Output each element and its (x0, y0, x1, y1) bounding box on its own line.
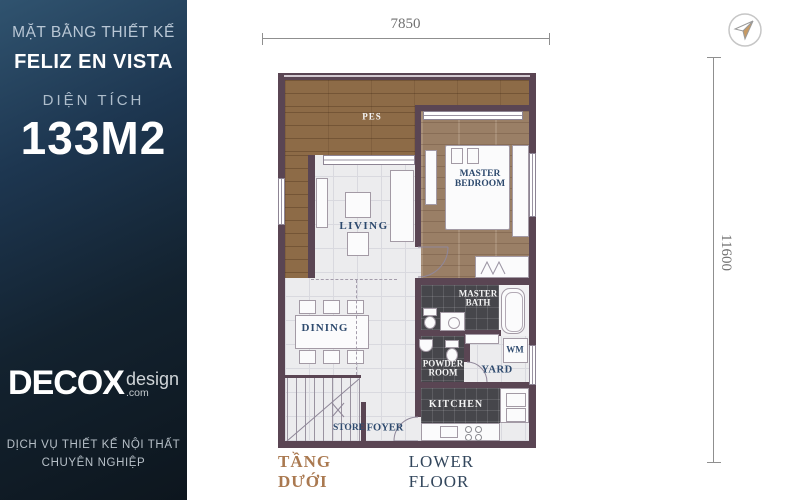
room-label-yard: YARD (481, 364, 512, 375)
dimension-tick (549, 33, 550, 45)
room-label-dining: DINING (302, 323, 349, 335)
dimension-height-line (713, 57, 714, 462)
yard-window (529, 345, 536, 385)
caption-vietnamese: TẦNG DƯỚI (278, 452, 383, 492)
floor-plan: PES MASTER BEDROOM LIVING DINING MASTER … (278, 73, 536, 448)
room-label-master-bedroom: MASTER BEDROOM (455, 170, 505, 190)
logo-name: DECOX (8, 368, 124, 399)
sidebar: MẶT BẰNG THIẾT KẾ FELIZ EN VISTA DIỆN TÍ… (0, 0, 187, 500)
plan-linework (285, 80, 529, 441)
dimension-tick (707, 57, 721, 58)
project-name: FELIZ EN VISTA (0, 51, 187, 74)
room-label-wm: WM (506, 345, 524, 354)
label-line: BEDROOM (455, 180, 505, 190)
sidebar-subtitle: MẶT BẰNG THIẾT KẾ (0, 24, 187, 42)
caption-english: LOWER FLOOR (409, 452, 536, 492)
area-label: DIỆN TÍCH (0, 92, 187, 109)
balcony-railing (284, 75, 530, 77)
dimension-tick (262, 33, 263, 45)
room-label-foyer: FOYER (367, 422, 404, 433)
room-label-kitchen: KITCHEN (429, 400, 483, 411)
room-label-living: LIVING (339, 221, 388, 233)
bedroom-right-window (529, 153, 536, 217)
logo-suffix: design (126, 371, 179, 388)
label-line: ROOM (423, 369, 464, 378)
plan-interior: PES MASTER BEDROOM LIVING DINING MASTER … (285, 80, 529, 441)
left-wall-window (278, 178, 285, 225)
room-label-powder-room: POWDER ROOM (423, 360, 464, 379)
area-value: 133M2 (0, 111, 187, 165)
services-text: DỊCH VỤ THIẾT KẾ NỘI THẤT CHUYÊN NGHIỆP (0, 437, 187, 473)
services-line1: DỊCH VỤ THIẾT KẾ NỘI THẤT (0, 437, 187, 455)
dimension-width-line (262, 38, 549, 39)
dimension-width-label: 7850 (262, 16, 549, 33)
logo-domain: .com (126, 388, 149, 399)
closet-rail-mark (481, 262, 505, 274)
room-label-master-bath: MASTER BATH (459, 290, 498, 309)
logo-side: design .com (126, 371, 179, 399)
room-label-pes: PES (362, 112, 382, 121)
label-line: BATH (459, 299, 498, 308)
decox-logo: DECOX design .com (0, 368, 187, 399)
bedroom-door-arc (418, 247, 448, 277)
compass-icon (727, 12, 763, 48)
room-label-store: STORE (333, 424, 365, 434)
plan-caption: TẦNG DƯỚI LOWER FLOOR (278, 452, 536, 492)
dimension-tick (707, 462, 721, 463)
dimension-height-label: 11600 (717, 234, 734, 271)
services-line2: CHUYÊN NGHIỆP (0, 455, 187, 473)
